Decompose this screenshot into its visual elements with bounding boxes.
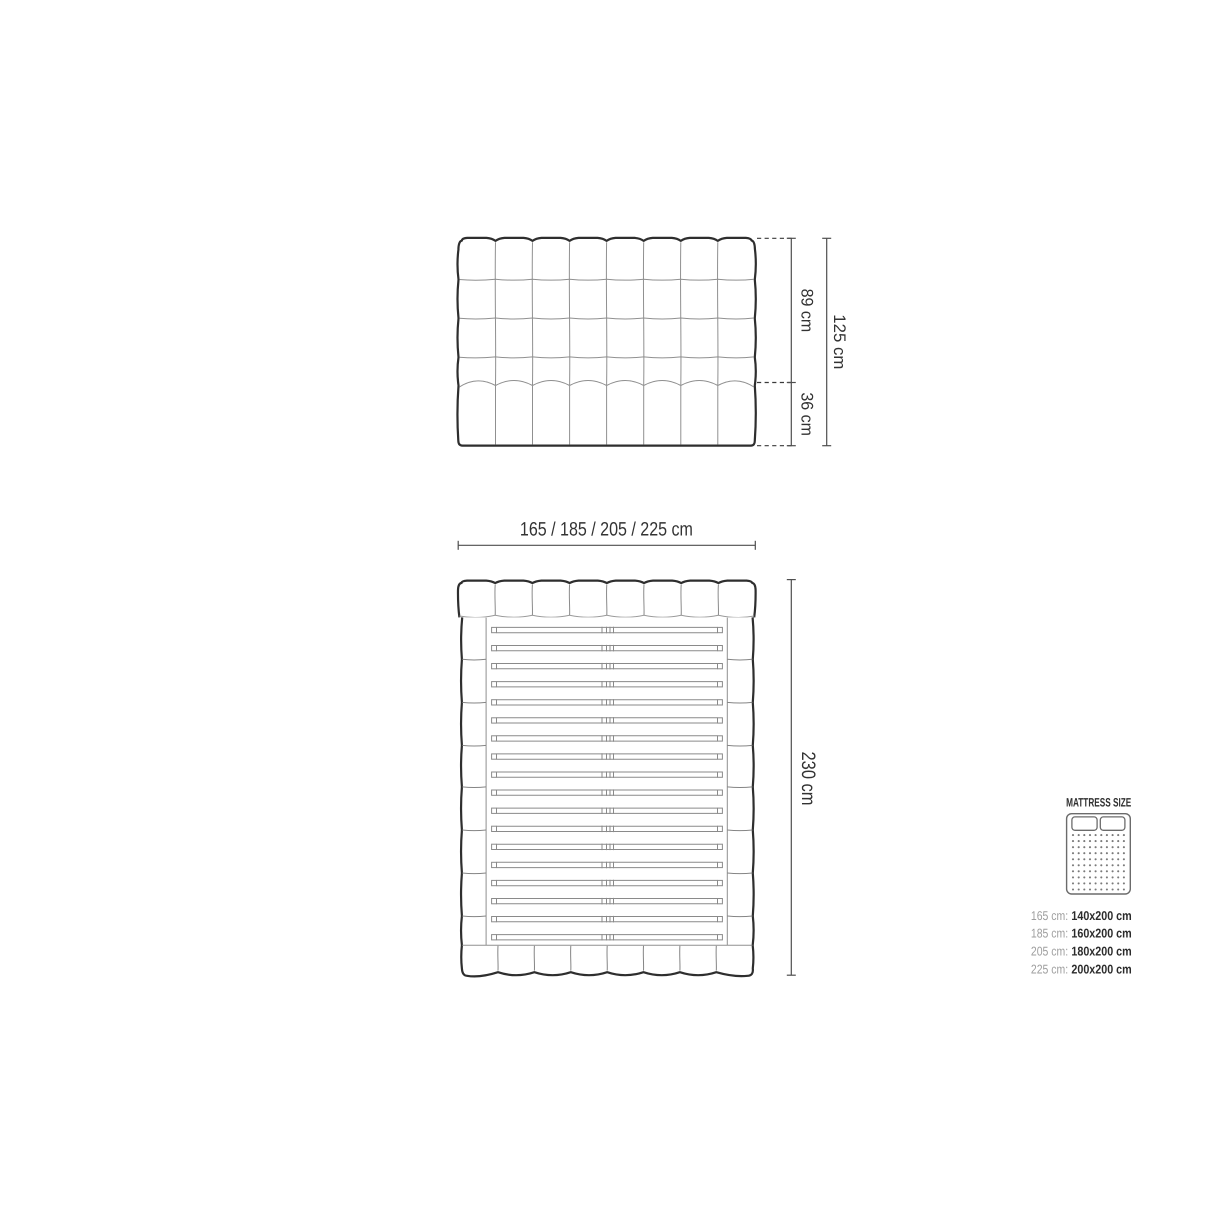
svg-text:200x200 cm: 200x200 cm [1071,963,1131,977]
svg-text:89 cm: 89 cm [797,289,816,333]
svg-text:225 cm:: 225 cm: [1031,963,1068,977]
svg-text:230 cm: 230 cm [797,752,819,806]
svg-text:165 cm:: 165 cm: [1031,909,1068,923]
svg-text:205 cm:: 205 cm: [1031,945,1068,959]
svg-text:125 cm: 125 cm [830,314,849,369]
svg-text:MATTRESS SIZE: MATTRESS SIZE [1066,795,1131,809]
svg-text:180x200 cm: 180x200 cm [1071,945,1131,959]
svg-text:36 cm: 36 cm [797,392,816,436]
svg-text:165 / 185 / 205 / 225 cm: 165 / 185 / 205 / 225 cm [520,518,693,540]
svg-text:140x200 cm: 140x200 cm [1071,909,1131,923]
svg-text:185 cm:: 185 cm: [1031,927,1068,941]
svg-text:160x200 cm: 160x200 cm [1071,927,1131,941]
